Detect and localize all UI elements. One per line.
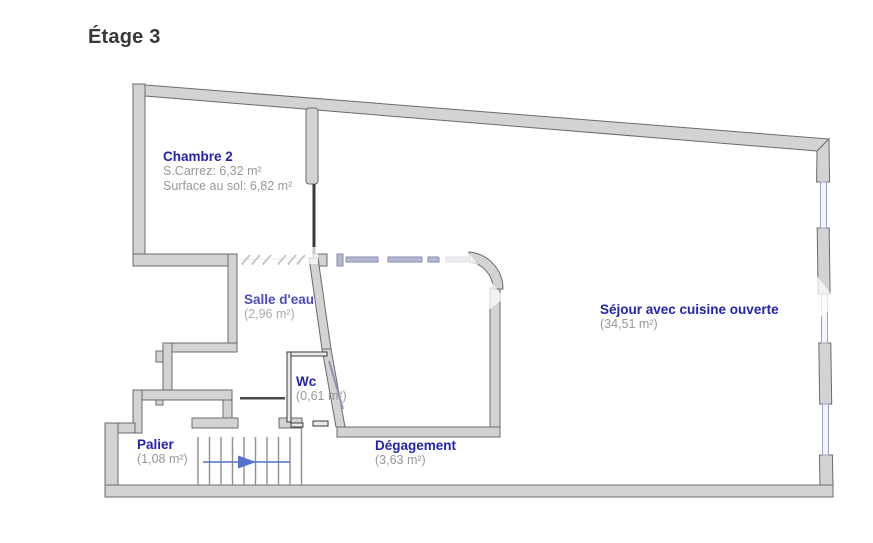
room-label-chambre-2: Chambre 2 S.Carrez: 6,32 m² Surface au s… <box>163 149 292 194</box>
page-title: Étage 3 <box>88 26 161 49</box>
windows <box>821 182 829 455</box>
room-name: Palier <box>137 437 188 452</box>
room-carrez-area: S.Carrez: 6,32 m² <box>163 164 292 179</box>
window-opening-1 <box>821 182 827 228</box>
floor-plan-page: Étage 3 Chambre 2 S.Carrez: 6,32 m² Surf… <box>0 0 873 543</box>
stairs <box>198 428 302 485</box>
room-label-degagement: Dégagement (3,63 m²) <box>375 438 456 468</box>
room-label-sejour: Séjour avec cuisine ouverte (34,51 m²) <box>600 302 779 332</box>
room-area: (2,96 m²) <box>244 307 314 322</box>
chambre2-thin-wall-line <box>313 184 316 254</box>
room-area: (34,51 m²) <box>600 317 779 332</box>
room-name: Wc <box>296 374 347 389</box>
door-threshold-line <box>240 397 285 400</box>
room-floor-area: Surface au sol: 6,82 m² <box>163 179 292 194</box>
room-label-palier: Palier (1,08 m²) <box>137 437 188 467</box>
room-label-salle-eau: Salle d'eau (2,96 m²) <box>244 292 314 322</box>
room-label-wc: Wc (0,61 m²) <box>296 374 347 404</box>
stairs-direction-arrow <box>203 456 290 469</box>
room-area: (3,63 m²) <box>375 453 456 468</box>
window-opening-3 <box>823 404 829 455</box>
room-name: Séjour avec cuisine ouverte <box>600 302 779 317</box>
room-area: (0,61 m²) <box>296 389 347 404</box>
room-name: Chambre 2 <box>163 149 292 164</box>
room-area: (1,08 m²) <box>137 452 188 467</box>
room-name: Salle d'eau <box>244 292 314 307</box>
room-name: Dégagement <box>375 438 456 453</box>
